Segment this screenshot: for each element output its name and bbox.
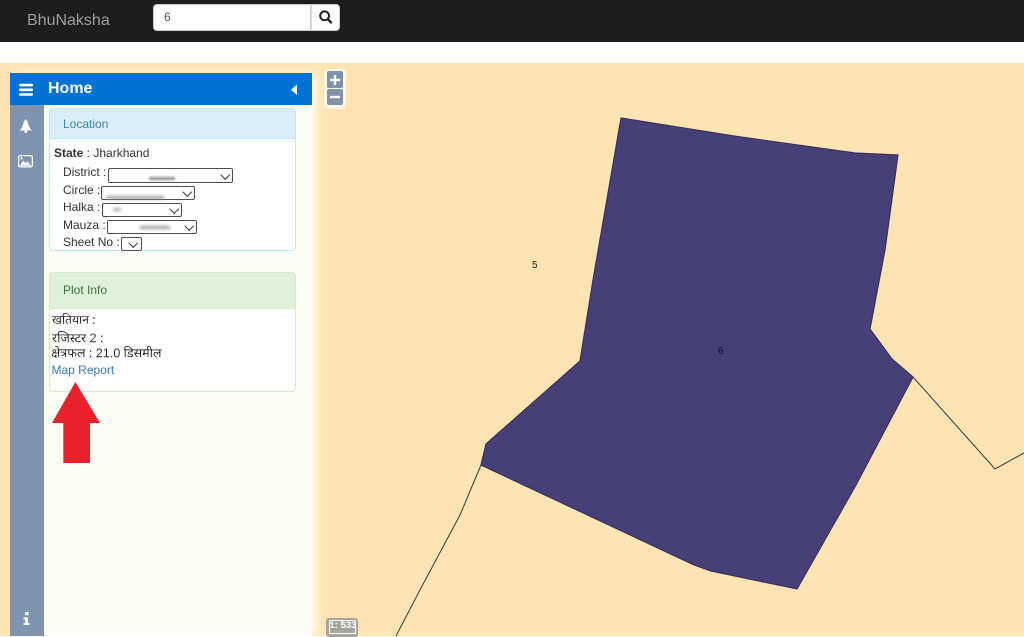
svg-text:6: 6 bbox=[718, 346, 724, 357]
svg-text:5: 5 bbox=[532, 260, 538, 271]
